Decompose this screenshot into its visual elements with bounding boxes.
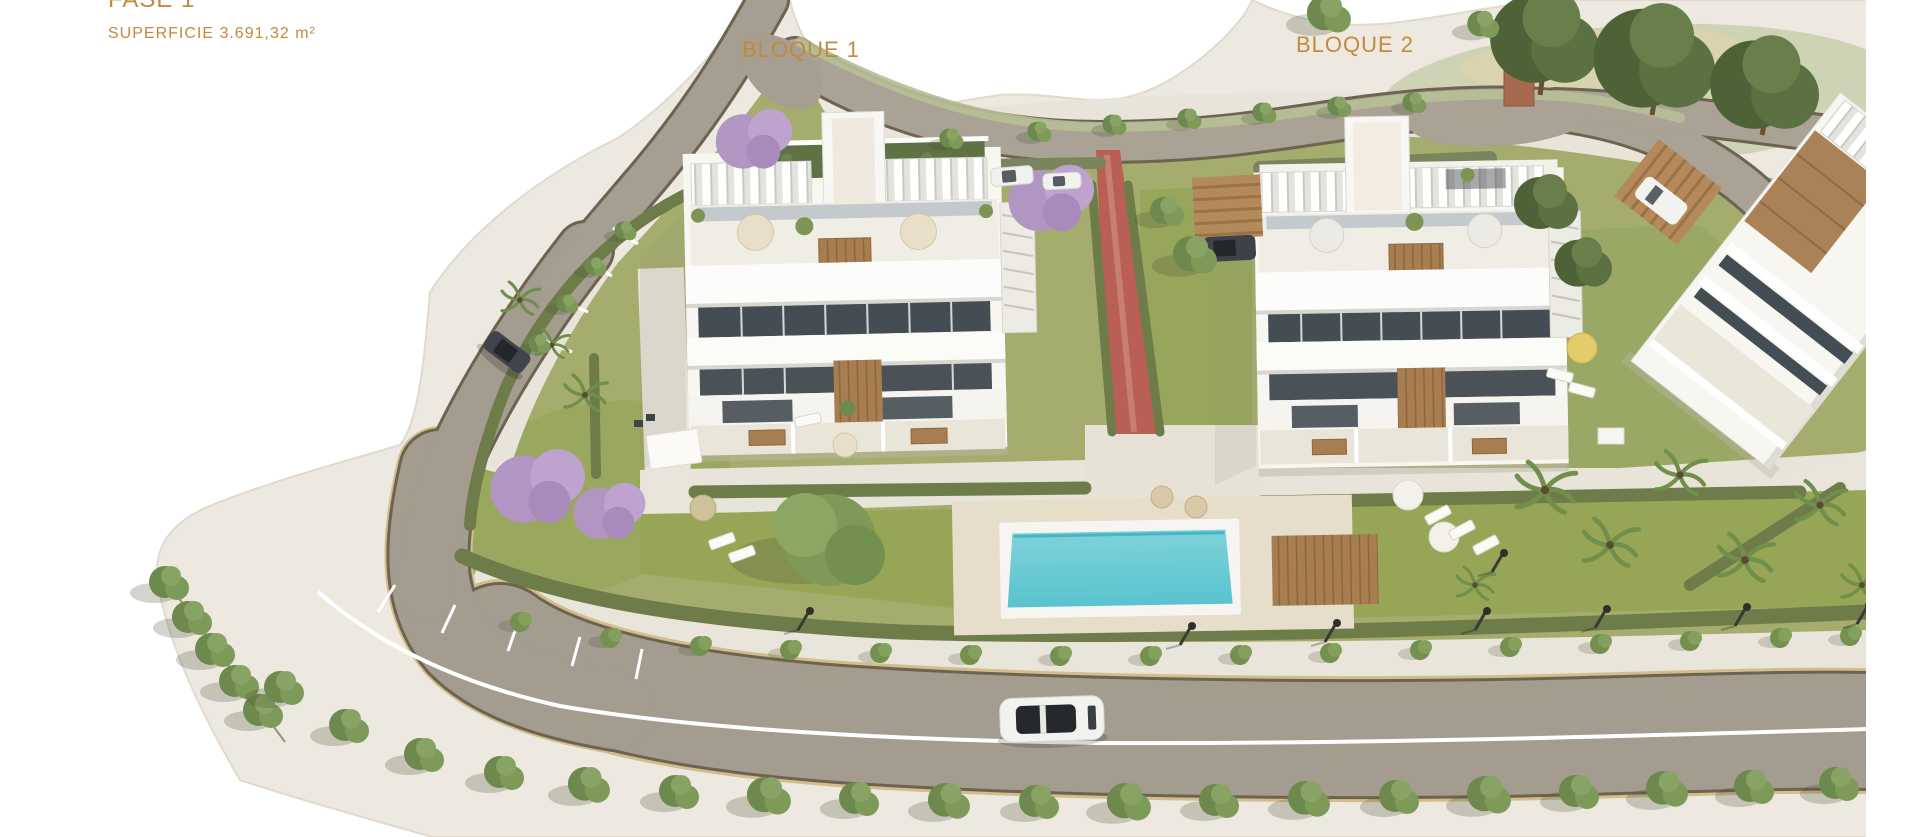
bloque2-building xyxy=(1253,113,1585,477)
terrace-umbrella xyxy=(900,213,937,250)
roof-pergola xyxy=(691,161,812,206)
label-bloque-2: BLOQUE 2 xyxy=(1296,32,1414,58)
swimming-pool xyxy=(952,494,1379,635)
yellow-umbrella xyxy=(1567,333,1597,363)
patio-table xyxy=(1472,438,1506,454)
label-superficie: SUPERFICIE 3.691,32 m² xyxy=(108,25,316,43)
car-white-bottom-road xyxy=(996,695,1108,750)
car-white-top-2 xyxy=(1043,172,1082,190)
patio-table xyxy=(1312,439,1346,455)
image-crop-strip xyxy=(1866,0,1920,837)
parasol xyxy=(833,433,857,457)
render-canvas: FASE 1 SUPERFICIE 3.691,32 m² BLOQUE 1 B… xyxy=(0,0,1920,837)
label-fase-1: FASE 1 xyxy=(108,0,195,14)
parasol xyxy=(690,495,716,521)
terrace-umbrella xyxy=(1467,213,1502,248)
car-white-top-1 xyxy=(990,165,1033,187)
pool-water xyxy=(1006,530,1232,608)
roof-pergola xyxy=(1260,171,1347,212)
patio-table xyxy=(749,430,785,446)
aerial-render xyxy=(0,0,1920,837)
label-bloque-1: BLOQUE 1 xyxy=(742,37,860,63)
terrace-umbrella xyxy=(737,214,774,251)
roof-pergola xyxy=(885,157,988,201)
pool-umbrella xyxy=(1393,480,1423,510)
patio-table xyxy=(911,428,947,444)
parasol xyxy=(1185,496,1207,518)
patio xyxy=(1260,425,1569,464)
parasol xyxy=(1151,486,1173,508)
white-table xyxy=(1598,428,1624,444)
wood-deck xyxy=(1271,534,1378,606)
terrace-umbrella xyxy=(1309,218,1344,253)
white-canopy xyxy=(646,429,702,470)
